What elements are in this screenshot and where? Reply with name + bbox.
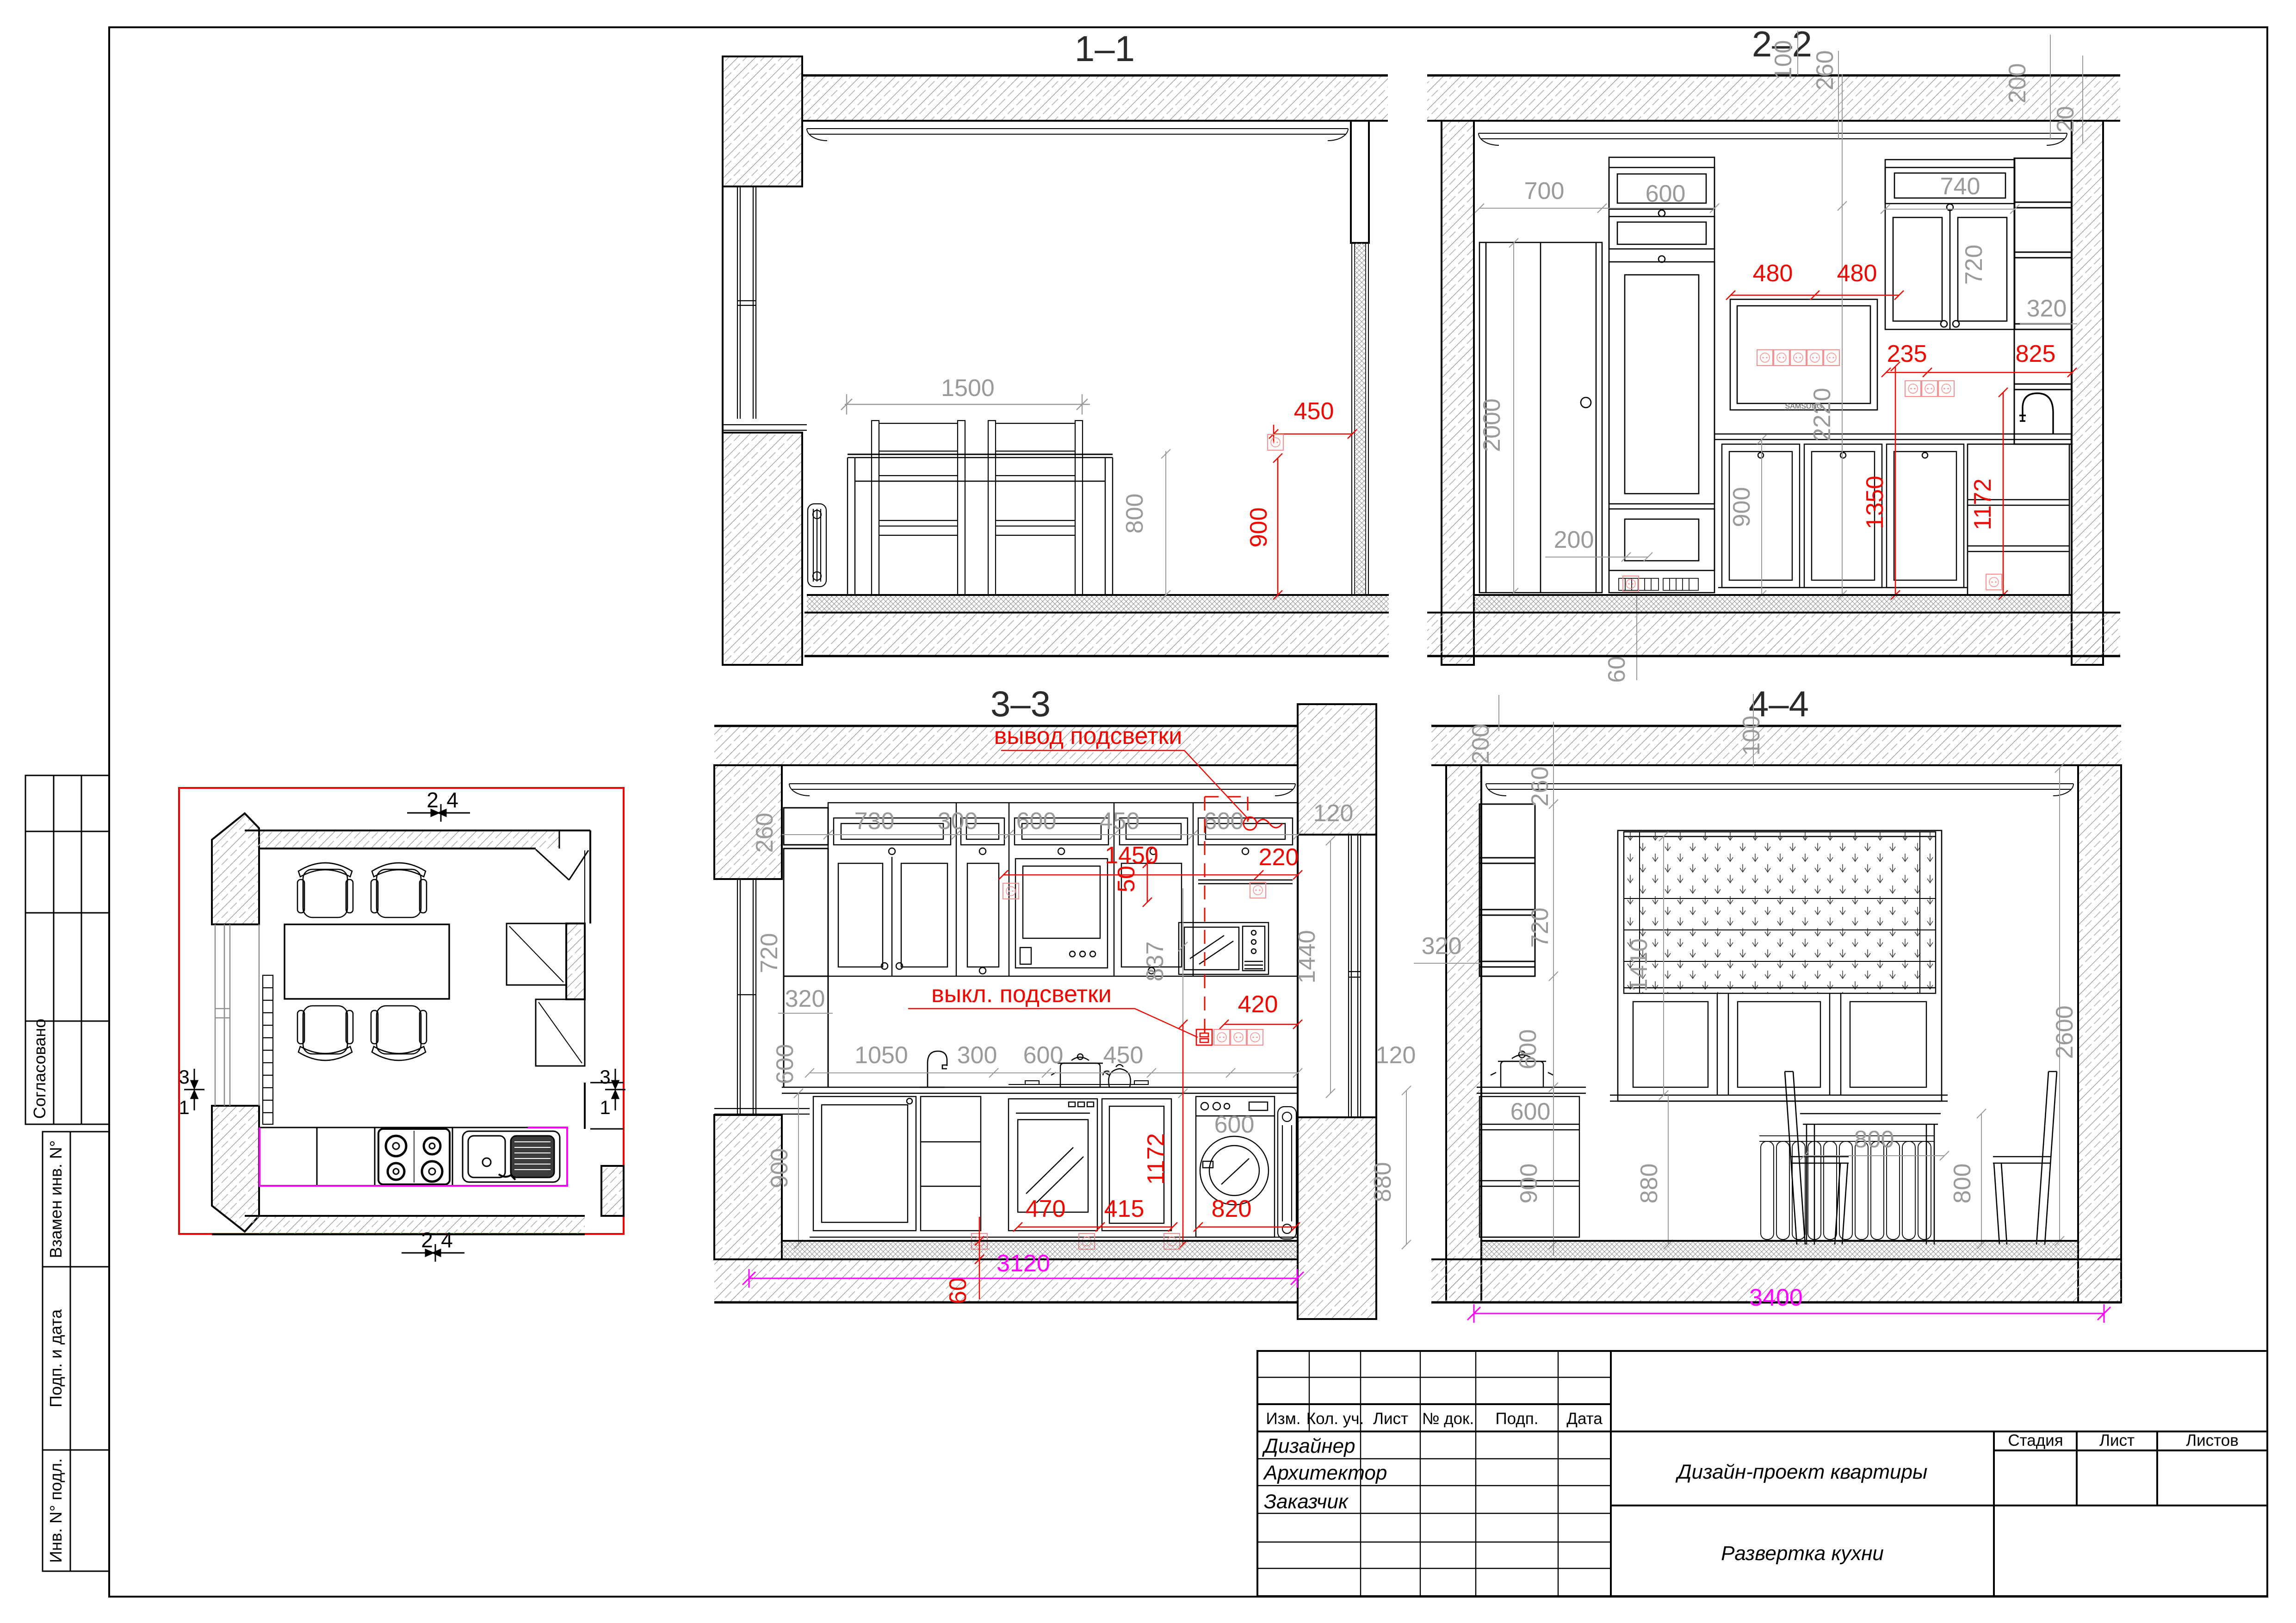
svg-text:900: 900 [1728, 487, 1755, 527]
svg-text:900: 900 [1245, 508, 1272, 548]
svg-text:450: 450 [1294, 398, 1334, 425]
svg-text:1172: 1172 [1969, 478, 1996, 530]
svg-text:4: 4 [446, 788, 458, 812]
svg-text:Подп. и дата: Подп. и дата [46, 1309, 65, 1407]
svg-text:320: 320 [785, 985, 825, 1012]
svg-text:420: 420 [1238, 991, 1278, 1018]
svg-text:450: 450 [1103, 1042, 1144, 1069]
svg-text:825: 825 [2016, 341, 2056, 367]
svg-text:720: 720 [756, 933, 783, 973]
svg-text:1450: 1450 [1105, 842, 1158, 869]
svg-text:Подп.: Подп. [1496, 1410, 1539, 1428]
svg-text:260: 260 [751, 813, 778, 853]
svg-text:1: 1 [179, 1096, 189, 1118]
svg-text:730: 730 [854, 808, 895, 835]
svg-text:480: 480 [1837, 260, 1877, 287]
svg-text:837: 837 [1142, 942, 1169, 982]
svg-text:2000: 2000 [1479, 398, 1505, 452]
svg-text:900: 900 [1516, 1164, 1542, 1204]
svg-text:200: 200 [2004, 63, 2031, 104]
svg-text:800: 800 [1854, 1126, 1894, 1153]
svg-text:800: 800 [1949, 1164, 1976, 1204]
svg-text:2: 2 [427, 788, 439, 812]
svg-text:100: 100 [1770, 40, 1797, 81]
svg-text:60: 60 [945, 1277, 972, 1304]
svg-text:880: 880 [1369, 1162, 1396, 1202]
svg-text:800: 800 [1121, 494, 1148, 534]
svg-text:220: 220 [1259, 844, 1299, 871]
svg-text:3: 3 [600, 1066, 610, 1088]
svg-text:Согласовано: Согласовано [30, 1019, 49, 1119]
svg-text:Листов: Листов [2186, 1431, 2239, 1450]
svg-text:1350: 1350 [1862, 476, 1888, 529]
svg-text:1410: 1410 [1626, 938, 1652, 992]
svg-text:200: 200 [1554, 527, 1594, 553]
svg-text:№ док.: № док. [1422, 1410, 1474, 1428]
svg-text:1: 1 [600, 1096, 610, 1118]
svg-text:2220: 2220 [1809, 388, 1836, 441]
svg-text:3120: 3120 [996, 1250, 1050, 1277]
svg-text:450: 450 [1100, 808, 1140, 835]
svg-text:1–1: 1–1 [1075, 28, 1135, 69]
svg-text:60: 60 [1603, 656, 1630, 683]
svg-text:20: 20 [2052, 106, 2079, 133]
svg-text:300: 300 [938, 808, 978, 835]
svg-text:1440: 1440 [1293, 930, 1320, 984]
svg-text:1050: 1050 [854, 1042, 908, 1069]
svg-text:100: 100 [1738, 716, 1765, 756]
svg-text:820: 820 [1212, 1196, 1252, 1222]
svg-text:120: 120 [1376, 1042, 1416, 1069]
svg-text:Изм.: Изм. [1266, 1410, 1301, 1428]
svg-text:320: 320 [1422, 933, 1462, 960]
svg-text:4: 4 [441, 1228, 453, 1252]
svg-text:вывод подсветки: вывод подсветки [994, 723, 1182, 750]
svg-text:1500: 1500 [941, 375, 995, 402]
svg-text:600: 600 [1510, 1098, 1551, 1125]
svg-text:415: 415 [1104, 1196, 1145, 1222]
svg-text:2: 2 [421, 1228, 433, 1252]
svg-text:3400: 3400 [1749, 1284, 1803, 1311]
svg-text:600: 600 [1204, 808, 1244, 835]
svg-text:Дизайн-проект квартиры: Дизайн-проект квартиры [1675, 1461, 1928, 1483]
svg-text:600: 600 [1023, 1042, 1064, 1069]
svg-text:700: 700 [1524, 178, 1565, 204]
svg-text:260: 260 [1812, 50, 1838, 91]
svg-text:470: 470 [1026, 1196, 1066, 1222]
svg-text:720: 720 [1527, 908, 1553, 948]
svg-text:200: 200 [1467, 724, 1494, 764]
svg-text:260: 260 [1527, 767, 1553, 807]
svg-text:Заказчик: Заказчик [1264, 1490, 1349, 1513]
svg-text:740: 740 [1940, 173, 1980, 200]
svg-text:Инв. N° подл.: Инв. N° подл. [46, 1458, 65, 1563]
svg-text:Лист: Лист [1373, 1410, 1408, 1428]
svg-text:300: 300 [957, 1042, 997, 1069]
svg-text:720: 720 [1961, 245, 1987, 285]
svg-text:Стадия: Стадия [2008, 1431, 2063, 1450]
svg-text:900: 900 [766, 1148, 793, 1189]
svg-text:880: 880 [1636, 1164, 1663, 1204]
svg-text:120: 120 [1313, 800, 1354, 827]
svg-text:выкл. подсветки: выкл. подсветки [931, 981, 1112, 1008]
svg-text:Взамен инв. N°: Взамен инв. N° [46, 1140, 65, 1258]
svg-text:600: 600 [772, 1044, 798, 1084]
svg-text:2600: 2600 [2051, 1005, 2078, 1059]
svg-text:Развертка кухни: Развертка кухни [1721, 1542, 1884, 1565]
svg-text:235: 235 [1887, 341, 1927, 367]
svg-text:600: 600 [1016, 808, 1057, 835]
svg-text:480: 480 [1753, 260, 1793, 287]
svg-text:1172: 1172 [1143, 1133, 1170, 1185]
svg-text:Архитектор: Архитектор [1262, 1462, 1387, 1484]
svg-text:Кол. уч.: Кол. уч. [1306, 1410, 1364, 1428]
svg-text:320: 320 [2027, 295, 2067, 322]
svg-text:50: 50 [1113, 866, 1140, 892]
svg-text:Дизайнер: Дизайнер [1262, 1435, 1355, 1457]
svg-text:3–3: 3–3 [990, 683, 1051, 724]
svg-text:3: 3 [179, 1066, 189, 1088]
svg-text:Дата: Дата [1566, 1410, 1603, 1428]
svg-text:Лист: Лист [2099, 1431, 2135, 1450]
svg-text:600: 600 [1646, 180, 1686, 207]
svg-text:600: 600 [1515, 1029, 1541, 1070]
svg-text:600: 600 [1214, 1111, 1255, 1138]
